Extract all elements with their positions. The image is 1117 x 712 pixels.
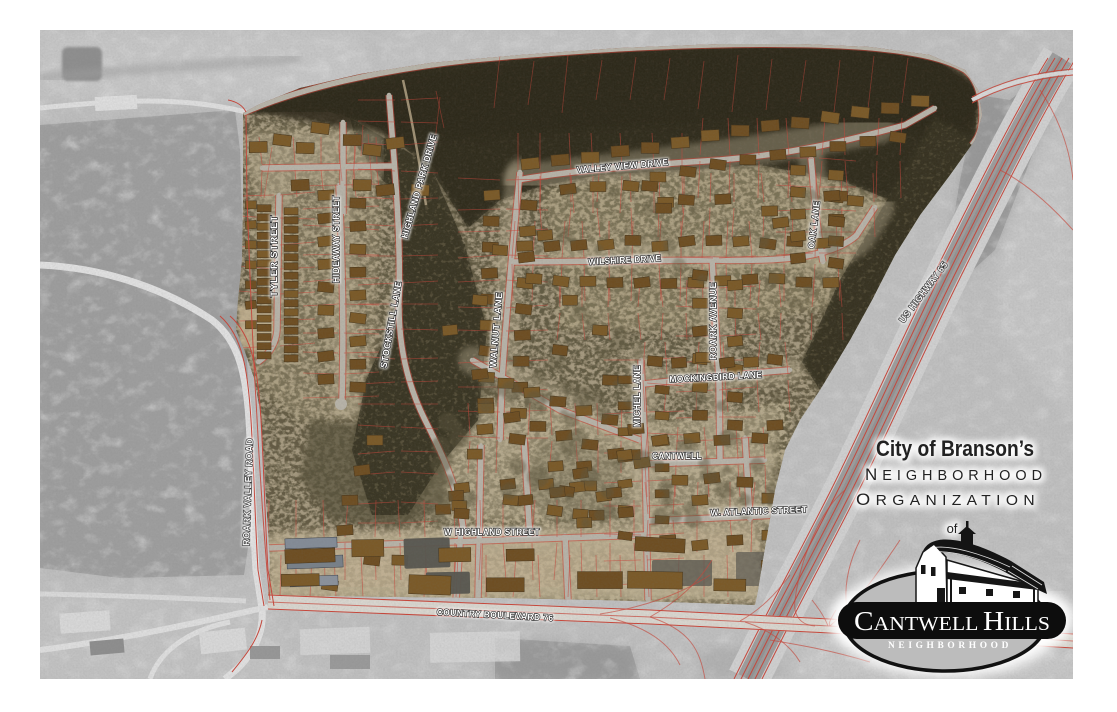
svg-text:NEIGHBORHOOD: NEIGHBORHOOD — [888, 640, 1012, 650]
svg-text:ROARK AVENUE: ROARK AVENUE — [708, 282, 718, 360]
svg-text:NEIGHBORHOOD: NEIGHBORHOOD — [865, 465, 1047, 484]
svg-text:W HIGHLAND STREET: W HIGHLAND STREET — [444, 527, 540, 537]
svg-text:ORGANIZATION: ORGANIZATION — [856, 490, 1040, 509]
svg-text:City of Branson’s: City of Branson’s — [876, 436, 1034, 461]
svg-text:TYLER STREET: TYLER STREET — [269, 215, 279, 297]
svg-text:of: of — [947, 521, 958, 536]
svg-text:MICHEL LANE: MICHEL LANE — [632, 365, 642, 427]
svg-text:CANTWELL: CANTWELL — [652, 451, 702, 461]
svg-text:HIDEAWAY STREET: HIDEAWAY STREET — [331, 195, 341, 283]
